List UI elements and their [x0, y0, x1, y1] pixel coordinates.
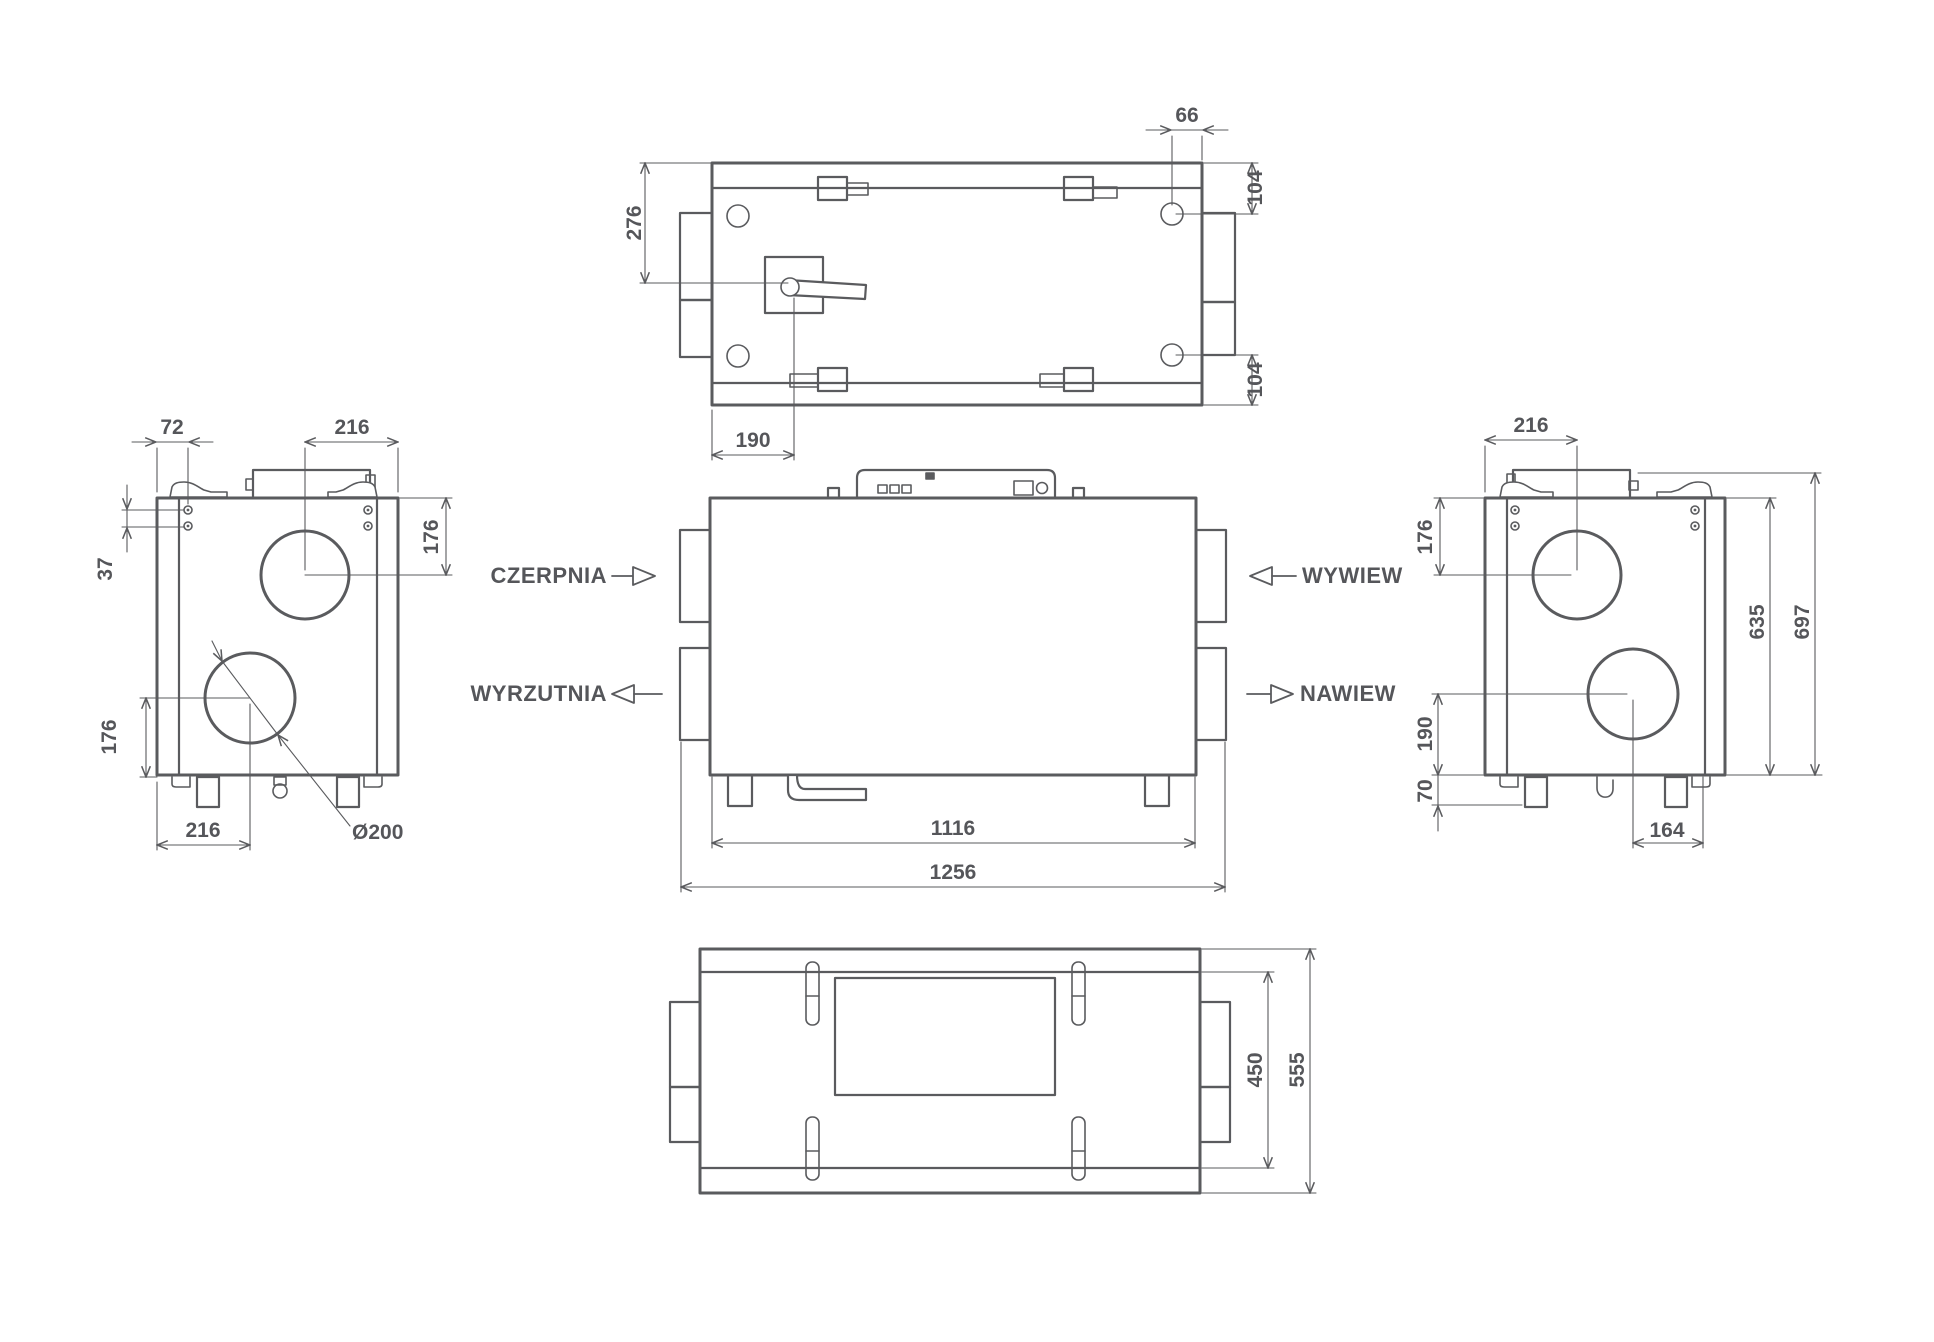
dim-104-front: 104: [1244, 362, 1267, 397]
dim-37: 37: [94, 557, 117, 580]
right-view-screw-holes: [1511, 506, 1699, 530]
czerpnia-flow-arrow: [633, 567, 655, 585]
top-view-dimensions: 276 66 104 104 190: [623, 104, 1267, 460]
front-view-port-labels: CZERPNIA WYRZUTNIA WYWIEW NAWIEW: [471, 563, 1403, 706]
dim-1256: 1256: [930, 861, 977, 884]
dim-176-bottom: 176: [98, 719, 121, 754]
dim-216-bottom: 216: [185, 819, 220, 842]
label-czerpnia: CZERPNIA: [491, 563, 607, 588]
dim-216-top: 216: [334, 416, 369, 439]
technical-drawing-page: 276 66 104 104 190: [0, 0, 1934, 1342]
left-view-mount-brackets: [170, 482, 377, 497]
dim-190: 190: [735, 429, 770, 452]
label-nawiew: NAWIEW: [1300, 681, 1396, 706]
left-view-feet: [172, 777, 382, 807]
bottom-view-duct-stubs: [670, 1002, 1230, 1142]
wyrzutnia-flow-arrow: [612, 685, 634, 703]
left-view-drain: [273, 777, 287, 798]
nawiew-stub: [1196, 648, 1226, 740]
dim-72: 72: [160, 416, 183, 439]
bottom-view-casing: [700, 949, 1200, 1193]
dim-555: 555: [1286, 1052, 1309, 1087]
dim-216: 216: [1513, 414, 1548, 437]
front-view-duct-stubs: [680, 530, 1226, 740]
right-view-drain-trap: [1597, 777, 1613, 797]
top-view-bypass-handle: [765, 257, 866, 313]
label-wyrzutnia: WYRZUTNIA: [471, 681, 607, 706]
dim-diameter-200: Ø200: [352, 821, 403, 844]
dim-104-back: 104: [1244, 170, 1267, 205]
handle-pivot: [781, 278, 799, 296]
top-view-duct-stubs: [680, 213, 1235, 357]
bottom-view-dimensions: 450 555: [1202, 949, 1316, 1193]
dim-276: 276: [623, 205, 646, 240]
right-view-feet: [1500, 777, 1710, 807]
right-view-mount-brackets: [1500, 482, 1712, 497]
wywiew-flow-arrow: [1250, 567, 1272, 585]
dim-176: 176: [1414, 519, 1437, 554]
front-view: [680, 470, 1226, 806]
bottom-view-flange-lines: [700, 972, 1200, 1168]
dim-1116: 1116: [931, 817, 975, 840]
right-side-view: [1485, 470, 1725, 807]
dim-66: 66: [1175, 104, 1198, 127]
left-view-screw-holes: [184, 506, 372, 530]
top-view: [680, 163, 1235, 405]
wyrzutnia-stub: [680, 648, 710, 740]
front-view-drain-pipe: [788, 775, 866, 800]
bottom-view-mount-slots: [806, 962, 1085, 1180]
dim-176-top: 176: [420, 519, 443, 554]
bottom-view-access-panel: [835, 978, 1055, 1095]
handle-lever: [788, 280, 866, 299]
front-view-casing: [710, 498, 1196, 775]
dim-190: 190: [1414, 716, 1437, 751]
bottom-view: [670, 949, 1230, 1193]
dim-164: 164: [1649, 819, 1684, 842]
wywiew-stub: [1196, 530, 1226, 622]
nawiew-flow-arrow: [1271, 685, 1293, 703]
dim-697: 697: [1791, 604, 1814, 639]
front-view-dimensions: 1116 1256: [681, 742, 1225, 892]
front-view-control-panel: [828, 470, 1084, 498]
left-side-view: [157, 470, 398, 807]
label-wywiew: WYWIEW: [1302, 563, 1403, 588]
right-view-panel-edges: [1507, 498, 1705, 775]
drawing-canvas: 276 66 104 104 190: [0, 0, 1934, 1342]
czerpnia-stub: [680, 530, 710, 622]
right-view-dimensions: 216 176 635 697 190 70 164: [1414, 414, 1822, 848]
dim-70: 70: [1414, 779, 1437, 802]
drawing-art: 276 66 104 104 190: [94, 104, 1822, 1193]
dim-450: 450: [1244, 1052, 1267, 1087]
dim-635: 635: [1746, 604, 1769, 639]
